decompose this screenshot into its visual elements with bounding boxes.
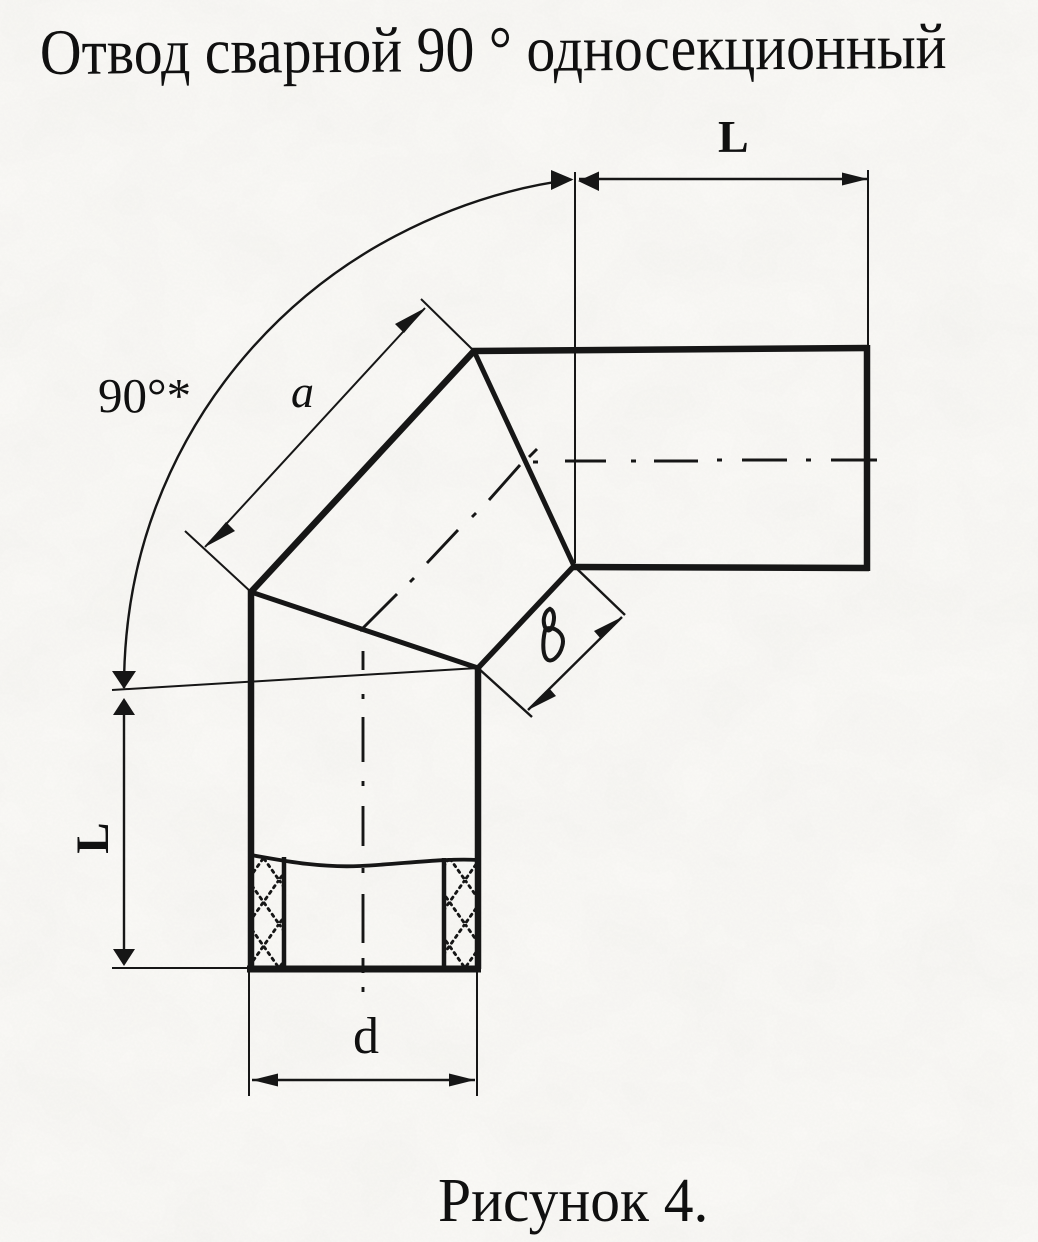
svg-text:L: L bbox=[67, 822, 119, 853]
svg-text:Рисунок 4.: Рисунок 4. bbox=[438, 1165, 708, 1235]
svg-text:L: L bbox=[718, 111, 749, 162]
svg-text:Отвод сварной 90 ° односекцион: Отвод сварной 90 ° односекционный bbox=[40, 11, 947, 89]
svg-text:90°*: 90°* bbox=[98, 368, 191, 423]
svg-text:d: d bbox=[353, 1008, 379, 1065]
svg-text:a: a bbox=[291, 366, 314, 417]
